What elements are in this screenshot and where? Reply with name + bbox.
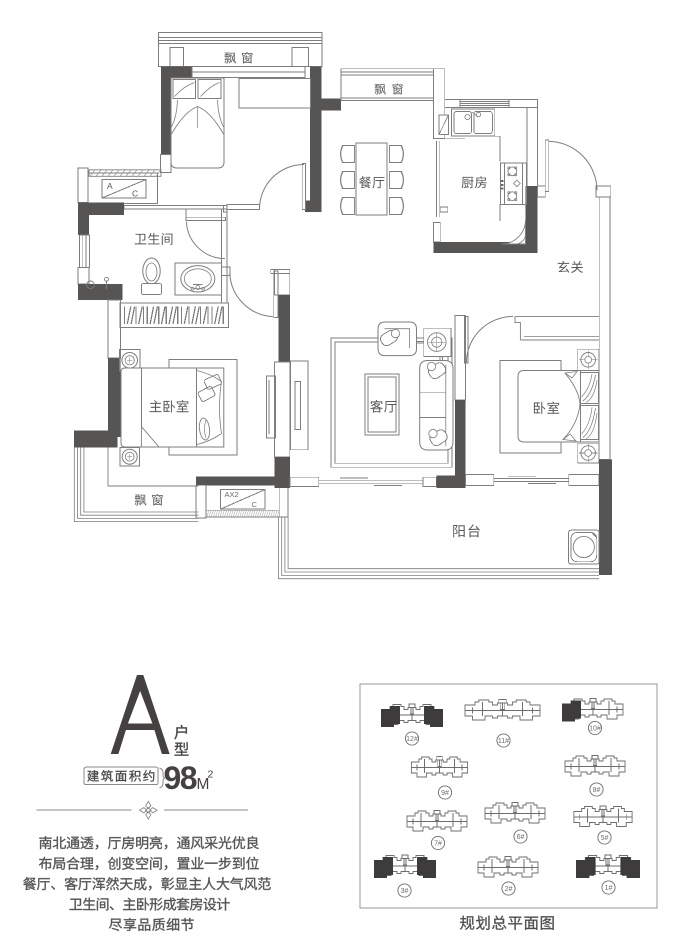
svg-text:98: 98 xyxy=(164,760,197,796)
svg-text:AX2: AX2 xyxy=(225,490,239,499)
svg-text:11#: 11# xyxy=(498,738,509,745)
svg-text:2: 2 xyxy=(208,769,214,781)
svg-text:7#: 7# xyxy=(434,841,442,848)
svg-text:3#: 3# xyxy=(401,888,409,895)
svg-text:1#: 1# xyxy=(605,885,613,892)
svg-text:C: C xyxy=(252,500,258,509)
svg-text:6#: 6# xyxy=(517,834,525,841)
svg-text:9#: 9# xyxy=(441,790,449,797)
svg-text:5#: 5# xyxy=(601,835,609,842)
svg-text:2#: 2# xyxy=(505,886,513,893)
svg-text:A: A xyxy=(107,181,113,191)
svg-text:10#: 10# xyxy=(589,726,601,733)
svg-text:C: C xyxy=(132,189,138,199)
svg-text:12#: 12# xyxy=(406,736,418,743)
svg-text:8#: 8# xyxy=(593,787,601,794)
